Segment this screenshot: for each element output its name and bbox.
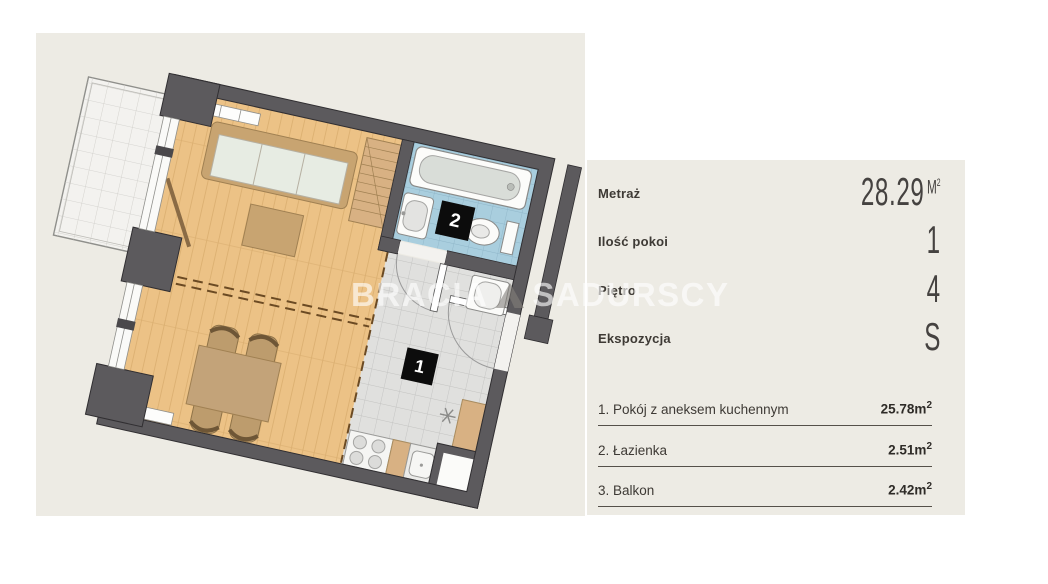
floor-plan: 2 1 [36, 33, 585, 516]
metric-value: 4 [927, 271, 941, 309]
listing-page: 2 1 BRACIA SADURSCY Metraż 28.29 M2 [0, 0, 1048, 584]
room-area: 2.51m2 [888, 441, 932, 458]
metric-label: Ekspozycja [598, 331, 671, 346]
floor-plan-area: 2 1 [36, 33, 585, 516]
metric-row-floor: Piętro 4 [598, 270, 941, 310]
metric-label: Ilość pokoi [598, 234, 668, 249]
room-name: 1. Pokój z aneksem kuchennym [598, 402, 789, 417]
room-list-item: 1. Pokój z aneksem kuchennym 25.78m2 [598, 400, 932, 426]
room-list-item: 3. Balkon 2.42m2 [598, 481, 932, 507]
metric-row-area: Metraż 28.29 M2 [598, 173, 941, 213]
room-label-bathroom: 2 [435, 200, 476, 241]
room-area: 25.78m2 [881, 400, 932, 417]
metric-label: Metraż [598, 186, 640, 201]
room-area: 2.42m2 [888, 481, 932, 498]
room-name: 2. Łazienka [598, 443, 667, 458]
metric-value: 1 [927, 222, 941, 260]
metric-label: Piętro [598, 283, 636, 298]
metric-row-rooms: Ilość pokoi 1 [598, 221, 941, 261]
room-list-item: 2. Łazienka 2.51m2 [598, 441, 932, 467]
metric-value: S [924, 319, 941, 357]
room-name: 3. Balkon [598, 483, 654, 498]
metric-value: 28.29 M2 [861, 174, 941, 212]
metric-row-exposure: Ekspozycja S [598, 318, 941, 358]
room-label-main: 1 [401, 347, 439, 385]
property-info-panel: Metraż 28.29 M2 Ilość pokoi 1 Piętro 4 E… [587, 160, 965, 515]
